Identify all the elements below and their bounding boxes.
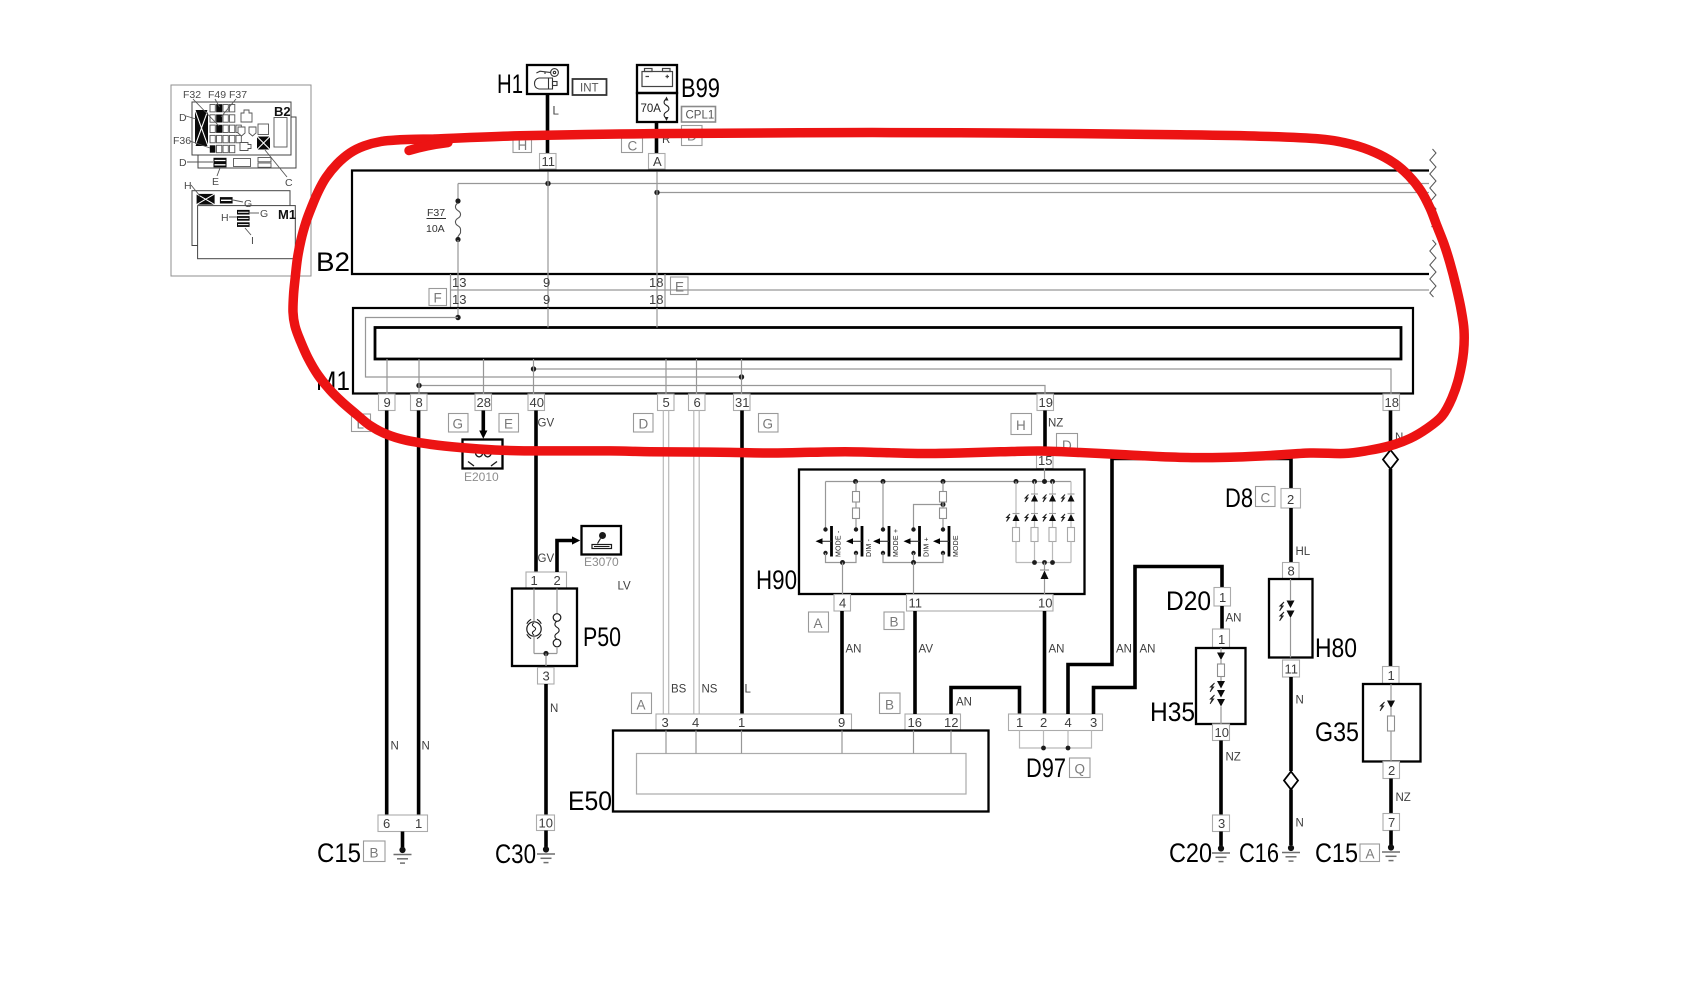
svg-text:9: 9 [384,395,391,410]
svg-text:E: E [504,417,513,432]
svg-text:16: 16 [908,715,922,730]
svg-text:2: 2 [1287,492,1294,507]
svg-text:DIM +: DIM + [924,537,931,557]
svg-text:H: H [1016,418,1026,433]
svg-text:E: E [675,280,684,295]
svg-text:G: G [763,417,774,432]
svg-text:11: 11 [1285,662,1299,677]
svg-text:4: 4 [839,596,846,611]
svg-text:D97: D97 [1026,753,1066,783]
svg-text:E: E [212,176,219,188]
svg-text:F49: F49 [208,89,226,101]
svg-text:NS: NS [702,684,718,696]
svg-text:A: A [637,698,646,713]
svg-text:E2010: E2010 [464,470,499,484]
svg-text:B99: B99 [681,73,720,103]
svg-text:3: 3 [1218,816,1225,831]
svg-text:N: N [1296,695,1304,707]
svg-text:D20: D20 [1166,586,1211,616]
svg-text:70A: 70A [641,103,662,115]
svg-text:4: 4 [1065,715,1072,730]
svg-text:HL: HL [1296,546,1311,558]
svg-text:28: 28 [477,395,491,410]
svg-text:C: C [1261,491,1271,506]
svg-text:CPL1: CPL1 [686,110,715,122]
svg-text:D8: D8 [1225,483,1253,513]
svg-text:9: 9 [838,715,845,730]
svg-text:AN: AN [1140,644,1156,656]
svg-text:MODE -: MODE - [836,530,843,557]
svg-text:B2: B2 [316,247,350,277]
svg-text:F: F [434,291,442,306]
svg-text:M1: M1 [278,207,296,222]
svg-text:G: G [453,417,464,432]
svg-text:H: H [221,212,229,224]
svg-text:2: 2 [1040,715,1047,730]
svg-text:L: L [553,106,560,118]
svg-text:DIM -: DIM - [866,538,873,557]
svg-text:F37: F37 [427,207,445,219]
svg-text:GV: GV [538,418,555,430]
svg-text:3: 3 [662,715,669,730]
svg-text:N: N [1296,818,1304,830]
svg-text:18: 18 [649,292,663,307]
svg-text:MODE: MODE [953,535,960,557]
svg-text:MODE +: MODE + [893,529,900,557]
svg-text:F36: F36 [173,135,191,147]
svg-text:BS: BS [671,684,687,696]
svg-text:P50: P50 [583,622,621,652]
svg-text:3: 3 [543,669,550,684]
svg-text:AN: AN [1226,613,1242,625]
svg-text:19: 19 [1039,395,1053,410]
svg-text:E50: E50 [568,786,612,816]
svg-text:C15: C15 [1315,838,1358,868]
svg-text:AV: AV [919,644,934,656]
svg-text:9: 9 [543,275,550,290]
svg-text:1: 1 [1388,668,1395,683]
svg-text:8: 8 [416,395,423,410]
svg-text:G: G [244,198,252,210]
svg-text:H35: H35 [1150,697,1195,727]
svg-text:G35: G35 [1315,717,1359,747]
svg-text:NZ: NZ [1048,418,1063,430]
svg-text:C: C [285,177,293,189]
svg-text:13: 13 [452,292,466,307]
svg-text:C20: C20 [1169,838,1212,868]
svg-text:18: 18 [649,275,663,290]
svg-text:10: 10 [1038,596,1052,611]
svg-text:6: 6 [383,816,390,831]
svg-text:B: B [885,698,894,713]
svg-text:A: A [1366,847,1375,862]
svg-text:C30: C30 [495,839,536,869]
svg-text:2: 2 [1388,763,1395,778]
svg-text:18: 18 [1385,395,1399,410]
svg-text:H1: H1 [497,69,523,99]
svg-text:5: 5 [663,395,670,410]
svg-text:AN: AN [956,697,972,709]
svg-text:F32: F32 [183,89,201,101]
svg-text:I: I [251,235,254,247]
svg-text:G: G [260,208,268,220]
svg-text:NZ: NZ [1226,752,1241,764]
svg-text:11: 11 [909,596,923,611]
svg-text:B: B [370,846,379,861]
svg-text:1: 1 [1016,715,1023,730]
svg-text:H80: H80 [1315,633,1357,663]
svg-text:8: 8 [1288,564,1295,579]
svg-text:40: 40 [530,395,544,410]
svg-text:4: 4 [692,715,699,730]
svg-text:C15: C15 [317,838,361,868]
svg-text:1: 1 [1218,632,1225,647]
svg-text:AN: AN [846,644,862,656]
svg-text:C16: C16 [1239,838,1279,868]
svg-text:B2: B2 [274,104,291,119]
svg-text:2: 2 [554,573,561,588]
svg-text:D: D [639,417,649,432]
svg-text:AN: AN [1049,644,1065,656]
svg-text:E3070: E3070 [584,555,619,569]
svg-text:12: 12 [944,715,958,730]
svg-text:1: 1 [1219,590,1226,605]
svg-text:INT: INT [580,83,599,95]
svg-text:GV: GV [538,553,555,565]
svg-text:10: 10 [1215,725,1229,740]
svg-text:N: N [422,741,430,753]
svg-text:C: C [628,139,638,154]
svg-text:A: A [653,154,662,169]
svg-text:D: D [179,157,187,169]
svg-text:10A: 10A [426,223,445,235]
svg-text:A: A [814,616,823,631]
svg-text:B: B [890,615,899,630]
svg-text:F37: F37 [229,89,247,101]
svg-text:1: 1 [738,715,745,730]
svg-text:LV: LV [618,581,632,593]
svg-text:H: H [184,180,192,192]
svg-text:1: 1 [531,573,538,588]
svg-text:N: N [391,741,399,753]
svg-text:1: 1 [415,816,422,831]
svg-text:10: 10 [539,816,553,831]
svg-text:7: 7 [1388,815,1395,830]
svg-text:6: 6 [694,395,701,410]
svg-text:13: 13 [452,275,466,290]
svg-text:31: 31 [735,395,749,410]
svg-text:9: 9 [543,292,550,307]
svg-text:N: N [550,703,558,715]
svg-text:3: 3 [1090,715,1097,730]
svg-text:Q: Q [1075,762,1086,777]
svg-text:L: L [745,684,752,696]
svg-text:H90: H90 [756,565,797,595]
svg-text:NZ: NZ [1396,792,1411,804]
svg-text:11: 11 [542,154,556,169]
svg-text:AN: AN [1116,644,1132,656]
svg-text:D: D [179,112,187,124]
